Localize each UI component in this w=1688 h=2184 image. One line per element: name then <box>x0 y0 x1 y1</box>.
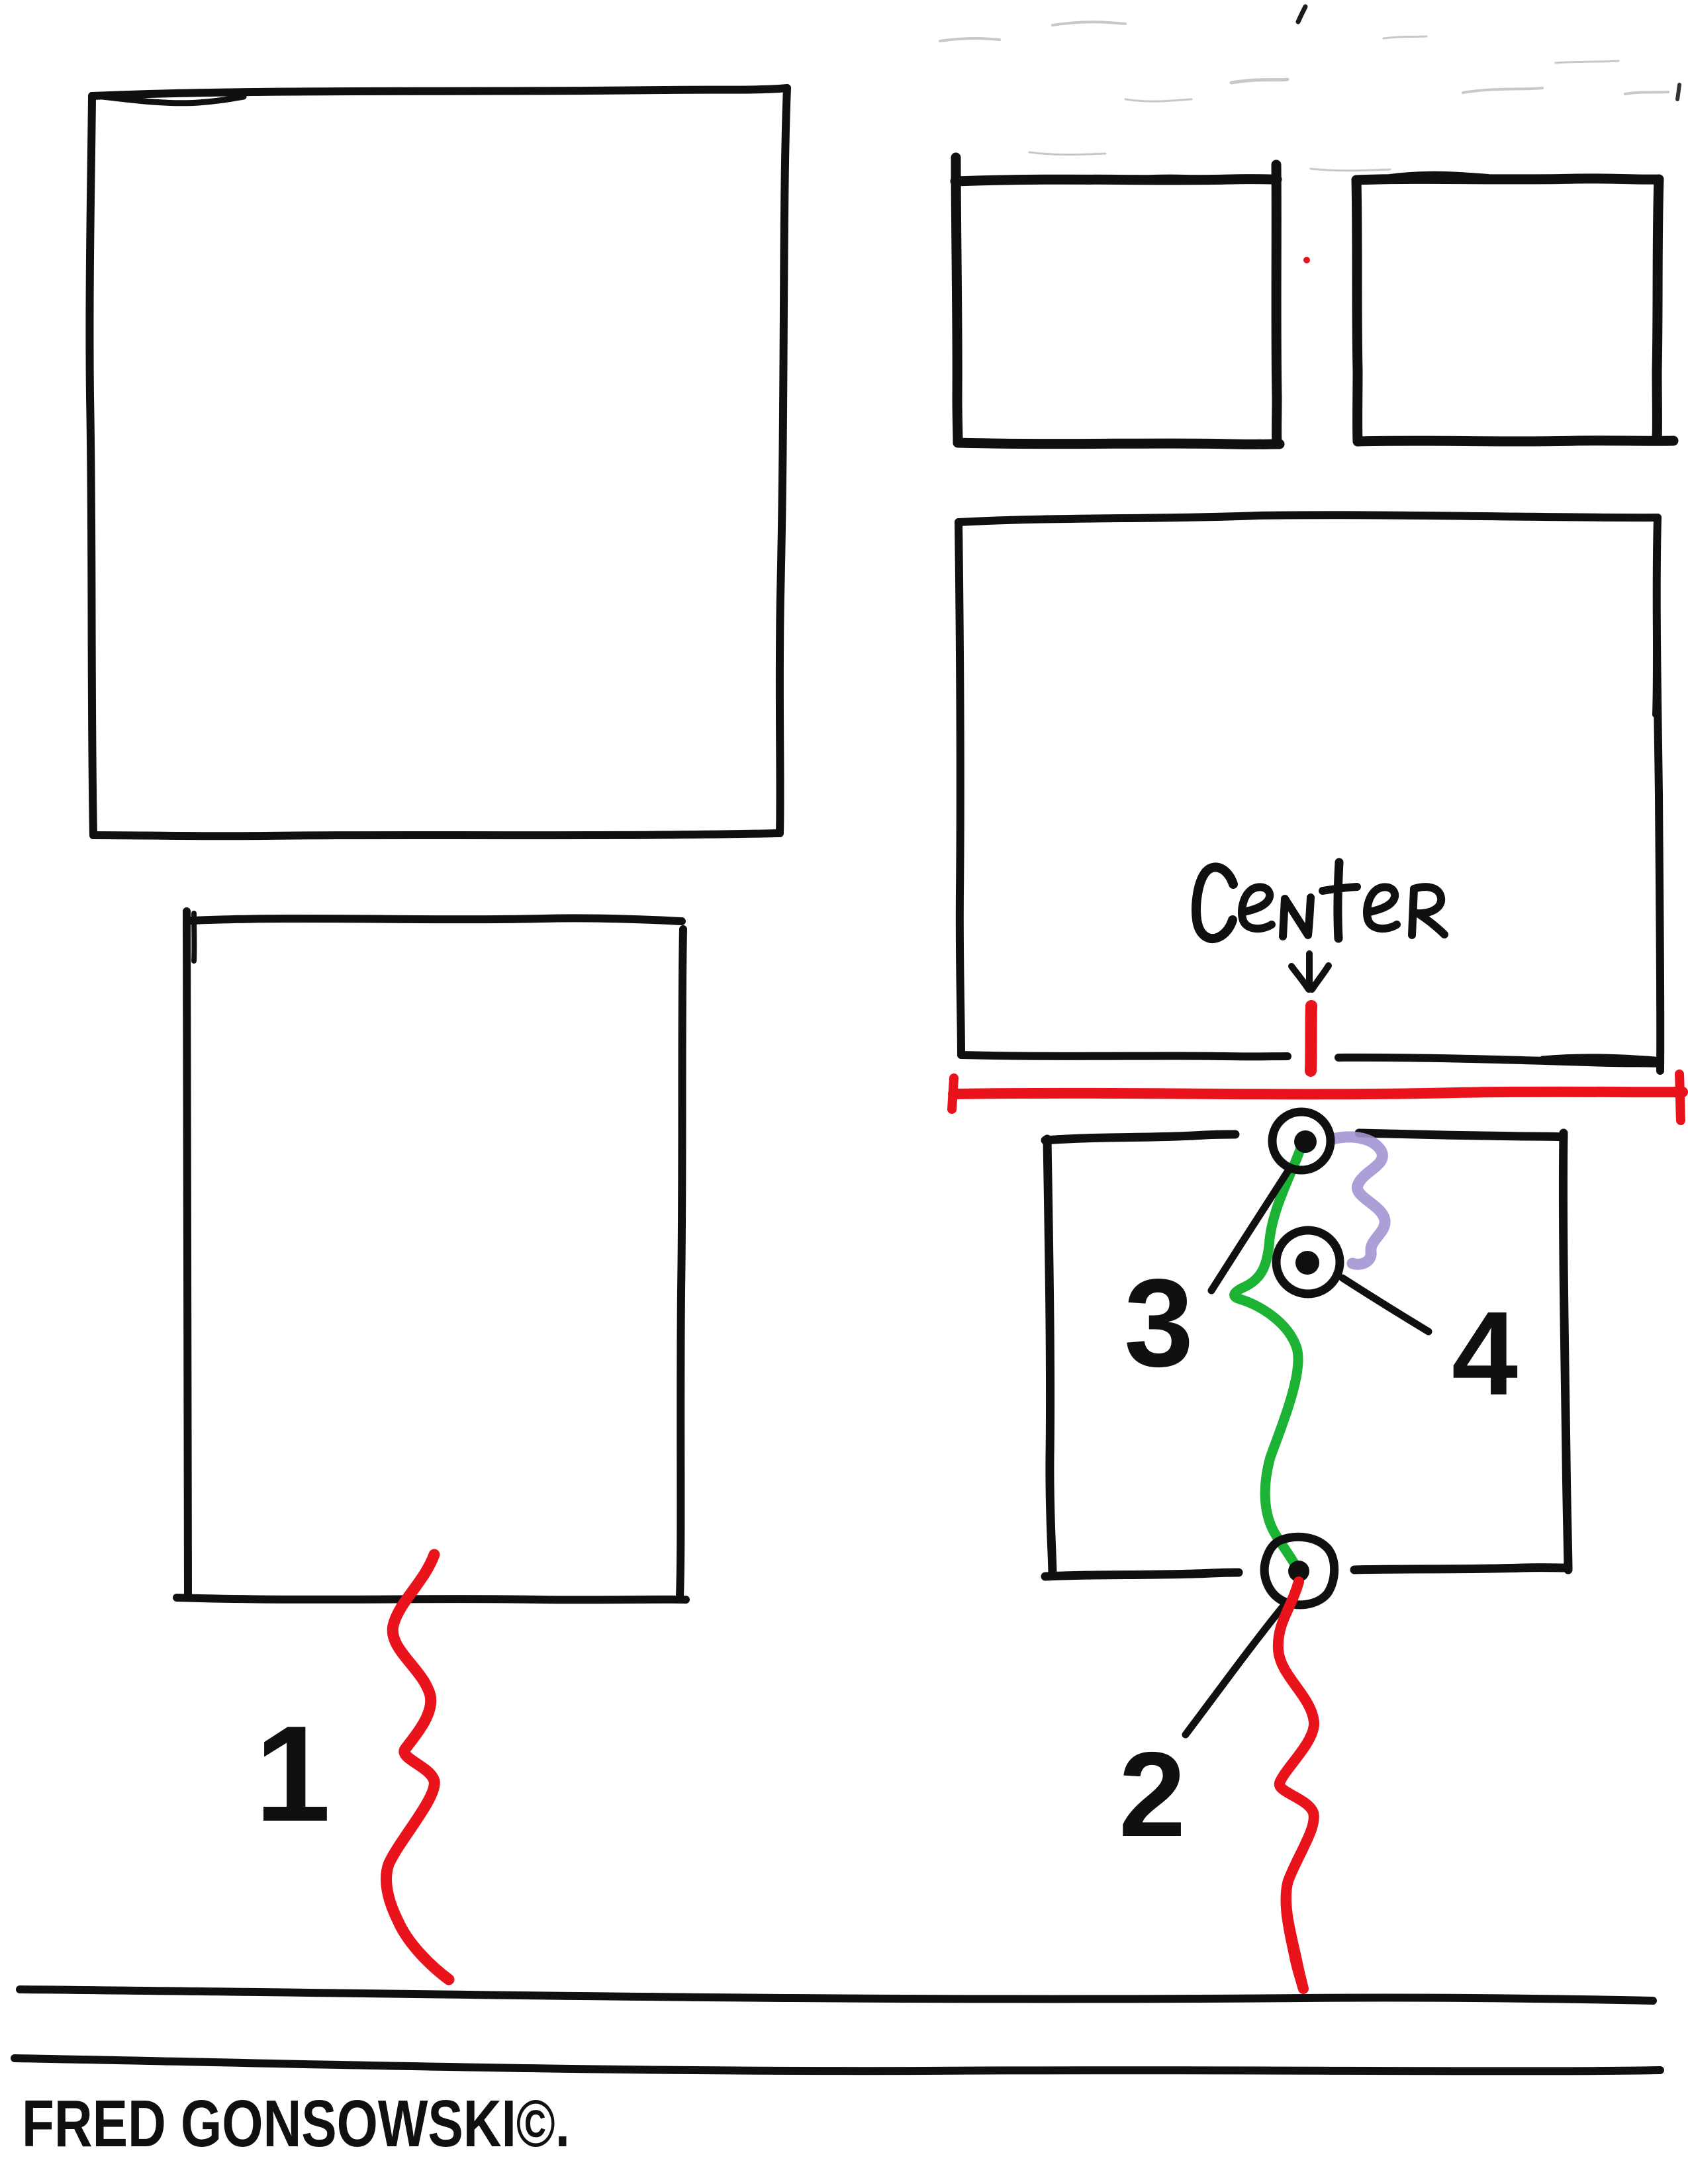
svg-text:2: 2 <box>1119 1727 1186 1862</box>
svg-text:FRED GONSOWSKI©.: FRED GONSOWSKI©. <box>22 2087 570 2161</box>
svg-text:4: 4 <box>1452 1287 1518 1420</box>
svg-text:1: 1 <box>255 1698 331 1850</box>
svg-text:3: 3 <box>1124 1253 1194 1393</box>
